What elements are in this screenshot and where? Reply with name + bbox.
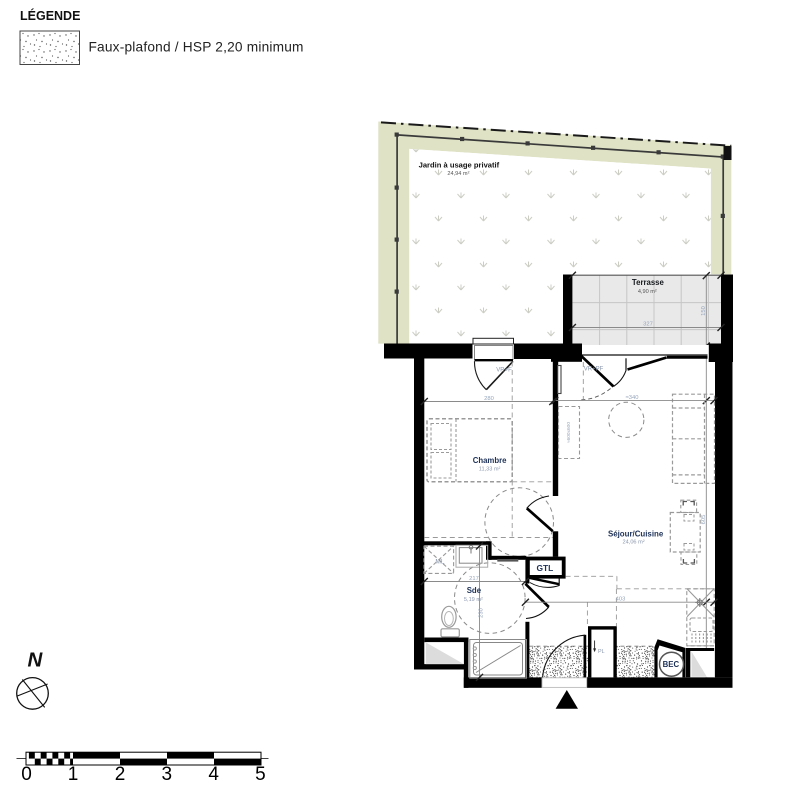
svg-text:5: 5 [255,764,266,785]
svg-text:24,94 m²: 24,94 m² [447,171,469,177]
svg-text:4,90 m²: 4,90 m² [638,289,657,295]
svg-text:GTL: GTL [537,563,554,573]
svg-text:280: 280 [484,396,494,402]
svg-text:150: 150 [701,306,707,316]
svg-text:BEC: BEC [663,660,680,669]
svg-text:327: 327 [643,322,653,328]
svg-text:VR+F: VR+F [496,367,512,373]
svg-text:PL: PL [598,649,605,655]
svg-text:≈600x600: ≈600x600 [566,422,572,443]
svg-text:5,19 m²: 5,19 m² [464,597,483,603]
svg-text:3: 3 [162,764,173,785]
svg-text:Sde: Sde [467,586,482,595]
svg-text:≈340: ≈340 [626,395,639,401]
svg-text:Chambre: Chambre [473,456,507,465]
svg-text:11,33 m²: 11,33 m² [479,466,501,472]
svg-text:2: 2 [115,764,126,785]
svg-text:230: 230 [479,608,485,618]
svg-text:Terrasse: Terrasse [632,278,665,287]
svg-text:605: 605 [701,515,707,525]
svg-text:24,06 m²: 24,06 m² [623,540,645,546]
svg-text:ML: ML [435,559,444,566]
svg-text:217: 217 [469,576,479,582]
svg-text:1: 1 [68,764,79,785]
svg-text:Faux-plafond / HSP 2,20 minimu: Faux-plafond / HSP 2,20 minimum [89,39,304,54]
svg-text:Séjour/Cuisine: Séjour/Cuisine [608,530,664,539]
svg-text:4: 4 [208,764,219,785]
svg-text:403: 403 [616,597,626,603]
svg-text:0: 0 [21,764,32,785]
svg-text:Jardin à usage privatif: Jardin à usage privatif [419,160,500,169]
svg-text:LÉGENDE: LÉGENDE [20,8,80,23]
svg-text:VR+PF: VR+PF [584,367,604,373]
svg-text:N: N [28,649,44,672]
